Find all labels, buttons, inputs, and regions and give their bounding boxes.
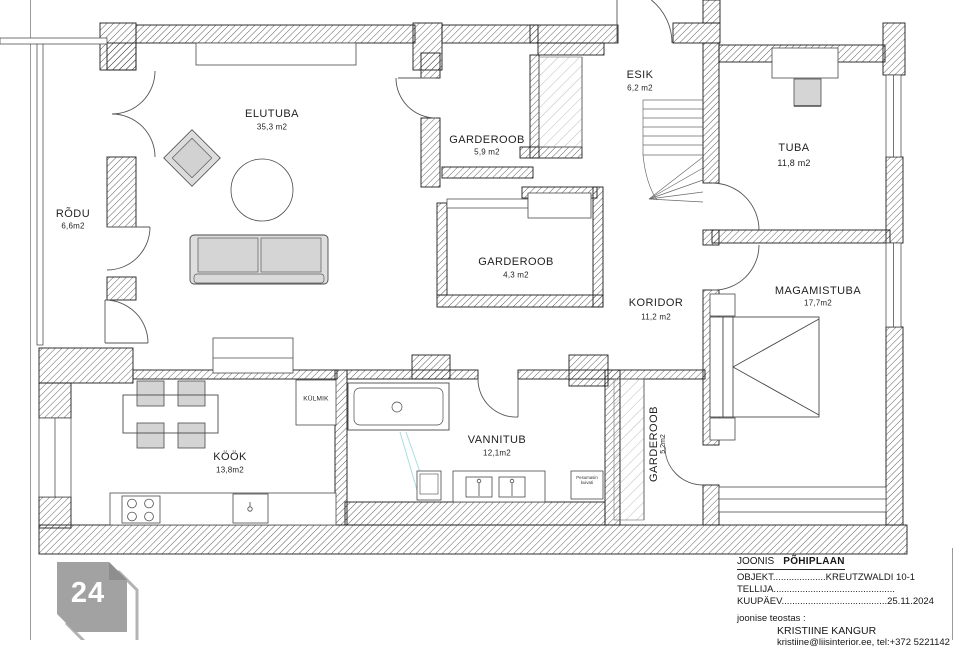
balcony-rail-left <box>37 40 43 345</box>
room-area-magamistuba: 17,7m2 <box>804 299 832 308</box>
balcony-door1-arc-bottom <box>112 114 155 157</box>
kitchen-sink <box>233 494 268 523</box>
titleblock-joonis-value: PÕHIPLAAN <box>783 556 845 567</box>
room-label-garderoob-52: GARDEROOB 5,2m2 <box>638 384 678 504</box>
bar-counter <box>213 338 293 373</box>
room-area-elutuba: 35,3 m2 <box>257 123 287 132</box>
tuba-door-arc <box>712 183 759 230</box>
sideboard <box>196 43 356 65</box>
room-label-vannituba: VANNITUB <box>468 434 526 446</box>
cased-opening <box>447 199 528 208</box>
titleblock-contact: kristiine@liisinterior.ee, tel:+372 5221… <box>777 637 950 648</box>
room-label-esik: ESIK <box>627 69 654 81</box>
balcony-door3-arc <box>105 300 148 343</box>
room-area-garderoob-59: 5,9 m2 <box>474 148 500 157</box>
desk-chair <box>794 79 821 106</box>
entrance-door-arc <box>651 0 672 43</box>
room-label-elutuba: ELUTUBA <box>245 108 299 120</box>
balcony-door1-arc-top <box>112 71 155 114</box>
dining-chairs <box>137 381 205 448</box>
closets <box>528 57 644 520</box>
room-area-tuba: 11,8 m2 <box>777 158 810 168</box>
bedroom-wardrobe <box>719 487 886 512</box>
magamistuba-door-arc <box>712 245 759 290</box>
armchair <box>164 130 221 187</box>
room-label-garderoob-43: GARDEROOB <box>478 256 554 268</box>
coffee-table <box>231 159 293 221</box>
room-area-koridor: 11,2 m2 <box>641 313 671 322</box>
builtin-wardrobe <box>528 193 591 218</box>
room-area-garderoob-43: 4,3 m2 <box>503 271 529 280</box>
titleblock-author: KRISTIINE KANGUR <box>777 625 876 637</box>
floorplan-drawing <box>0 0 960 640</box>
titleblock-kuupaev: KUUPÄEV.................................… <box>737 596 934 607</box>
logo-24-label: 24 <box>64 577 112 610</box>
washer-label: Pesumasin kuivati <box>576 476 597 486</box>
washer-label-line2: kuivati <box>576 481 597 486</box>
room-area-esik: 6,2 m2 <box>627 84 653 93</box>
fridge <box>296 380 336 425</box>
vannituba-door-arc <box>478 379 518 417</box>
room-area-vannituba: 12,1m2 <box>483 449 511 458</box>
stairs <box>643 100 703 202</box>
titleblock-teostas: joonise teostas : <box>737 613 806 624</box>
toilet <box>417 471 441 500</box>
garderoob59-door-arc <box>396 78 436 118</box>
balcony-door2-arc <box>107 227 150 270</box>
bathtub <box>348 383 449 430</box>
room-label-tuba: TUBA <box>778 142 809 154</box>
room-label-koridor: KORIDOR <box>629 297 684 309</box>
room-label-garderoob-52-name: GARDEROOB <box>649 406 661 482</box>
room-label-rodu: RÕDU <box>56 208 90 220</box>
room-label-garderoob-59: GARDEROOB <box>449 134 525 146</box>
room-area-rodu: 6,6m2 <box>61 222 84 231</box>
room-area-garderoob-52: 5,2m2 <box>660 434 667 453</box>
fridge-label: KÜLMIK <box>303 396 328 403</box>
washbasins <box>453 471 545 502</box>
floorplan-page: ELUTUBA 35,3 m2 RÕDU 6,6m2 GARDEROOB 5,9… <box>0 0 960 640</box>
titleblock-tellija: TELLIJA.................................… <box>737 584 895 595</box>
room-label-kook: KÖÖK <box>213 451 247 463</box>
titleblock-objekt: OBJEKT....................KREUTZWALDI 10… <box>737 572 915 583</box>
balcony-rail-top <box>0 38 107 44</box>
desk <box>772 48 838 78</box>
room-label-magamistuba: MAGAMISTUBA <box>775 285 861 297</box>
stove <box>122 496 160 523</box>
bed <box>710 317 819 417</box>
titleblock-joonis-label: JOONIS <box>737 556 774 567</box>
room-area-kook: 13,8m2 <box>216 466 244 475</box>
titleblock-joonis-row: JOONIS PÕHIPLAAN <box>737 556 845 570</box>
sofa <box>190 235 328 284</box>
